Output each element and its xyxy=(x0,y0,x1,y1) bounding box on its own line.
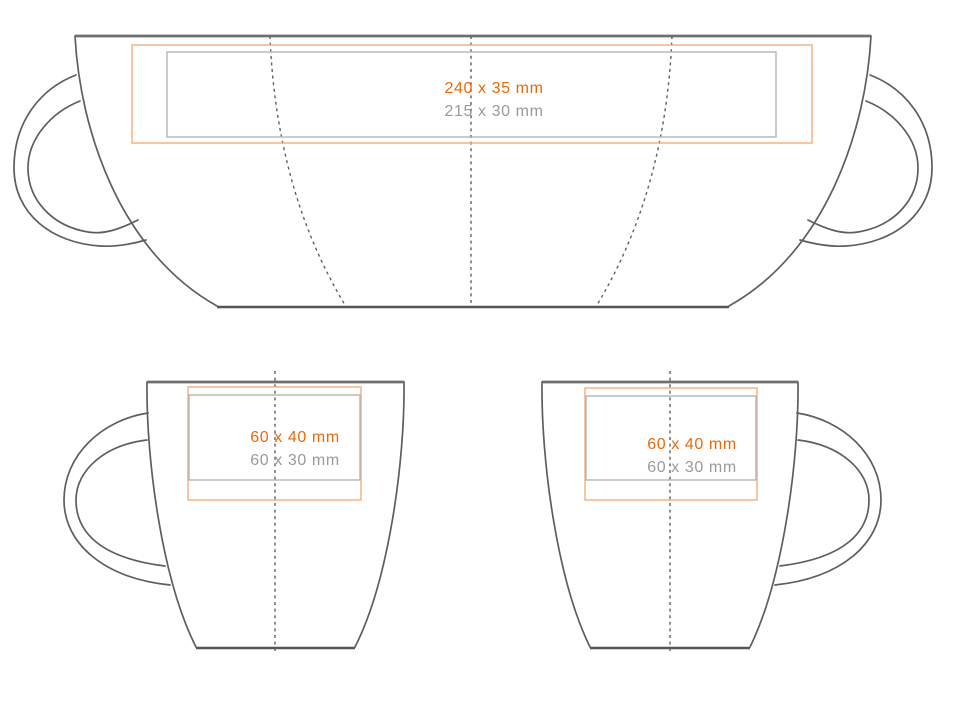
wrap-seam-dashed-left xyxy=(270,36,345,305)
right-mug-print-area-label: 60 x 40 mm 60 x 30 mm xyxy=(582,433,802,479)
right-mug-max-dimension-text: 60 x 40 mm xyxy=(582,433,802,456)
wrap-max-dimension-text: 240 x 35 mm xyxy=(384,77,604,100)
wrap-body-right-edge xyxy=(729,36,871,306)
wrap-safe-dimension-text: 215 x 30 mm xyxy=(384,100,604,123)
wrap-left-handle-inner xyxy=(28,101,138,233)
wrap-right-handle-inner xyxy=(808,101,918,233)
left-mug-handle-inner xyxy=(76,440,165,566)
left-mug-safe-dimension-text: 60 x 30 mm xyxy=(185,449,405,472)
right-mug-body-left-edge xyxy=(542,382,590,647)
left-mug-handle-outer xyxy=(64,413,170,585)
mug-print-area-template-diagram: 240 x 35 mm 215 x 30 mm 60 x 40 mm 60 x … xyxy=(0,0,953,717)
figure-front-view-left xyxy=(64,371,404,651)
wrap-seam-dashed-right xyxy=(597,36,672,305)
left-mug-body-right-edge xyxy=(355,382,404,647)
wrap-print-area-label: 240 x 35 mm 215 x 30 mm xyxy=(384,77,604,123)
right-mug-safe-dimension-text: 60 x 30 mm xyxy=(582,456,802,479)
wrap-body-left-edge xyxy=(75,36,217,306)
left-mug-print-area-label: 60 x 40 mm 60 x 30 mm xyxy=(185,426,405,472)
figure-front-view-right xyxy=(542,371,881,651)
left-mug-max-dimension-text: 60 x 40 mm xyxy=(185,426,405,449)
